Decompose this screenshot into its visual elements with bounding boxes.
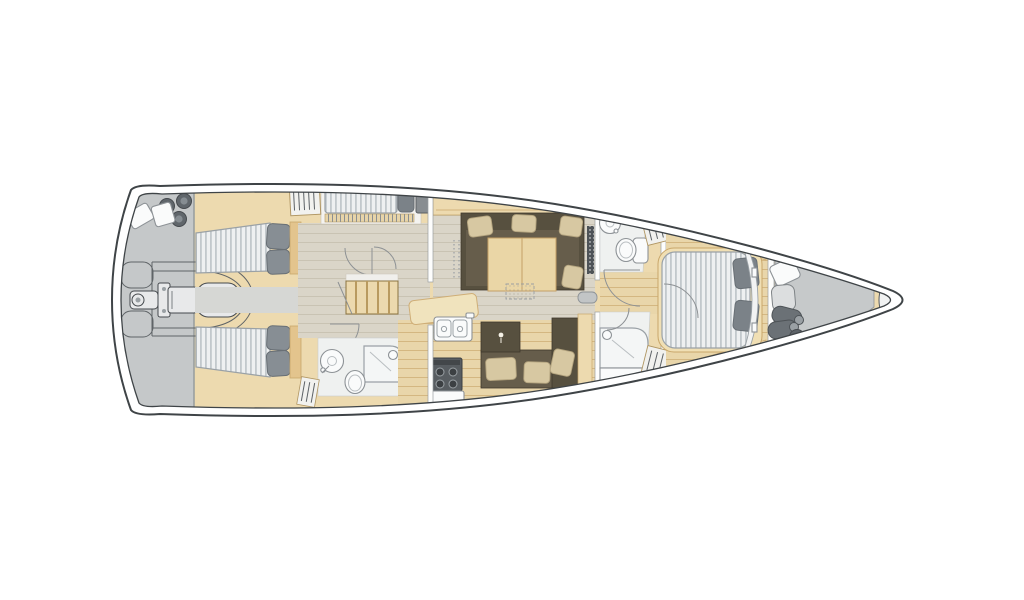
corridor-floor	[298, 223, 428, 281]
cushion-icon	[467, 215, 493, 237]
stove-icon	[431, 358, 462, 391]
sink-icon	[434, 313, 474, 341]
cushion-icon	[559, 216, 583, 238]
toilet-icon	[345, 371, 365, 394]
aft-passage-floor	[195, 287, 300, 313]
toilet-icon	[616, 238, 648, 263]
pillow	[266, 350, 291, 377]
cushion-icon	[524, 362, 551, 384]
sink-icon	[321, 350, 344, 374]
companionway-stairs	[338, 274, 398, 314]
corridor-floor	[346, 314, 398, 338]
shower-icon	[600, 328, 648, 368]
headboard-latch	[752, 323, 757, 332]
faucet-icon	[466, 313, 474, 318]
headboard-latch	[752, 268, 757, 277]
lamp-icon	[499, 333, 504, 338]
sail-locker	[767, 226, 874, 372]
corridor-floor	[298, 281, 346, 338]
cushion-icon	[561, 265, 584, 290]
shower-icon	[364, 346, 402, 382]
berth-bench-slats	[325, 214, 414, 222]
vent-grille-dots	[587, 226, 594, 274]
yacht-floorplan	[0, 0, 1024, 600]
cushion-icon	[550, 348, 576, 377]
pillow	[266, 249, 290, 274]
yacht-floorplan-canvas	[0, 0, 1024, 600]
step-pad	[578, 292, 597, 303]
folding-stool	[506, 284, 534, 299]
pillow	[266, 223, 291, 250]
cushion-icon	[512, 214, 537, 232]
cushion-icon	[485, 357, 516, 381]
pillow	[266, 325, 290, 350]
fwd-corridor-floor	[600, 272, 662, 314]
